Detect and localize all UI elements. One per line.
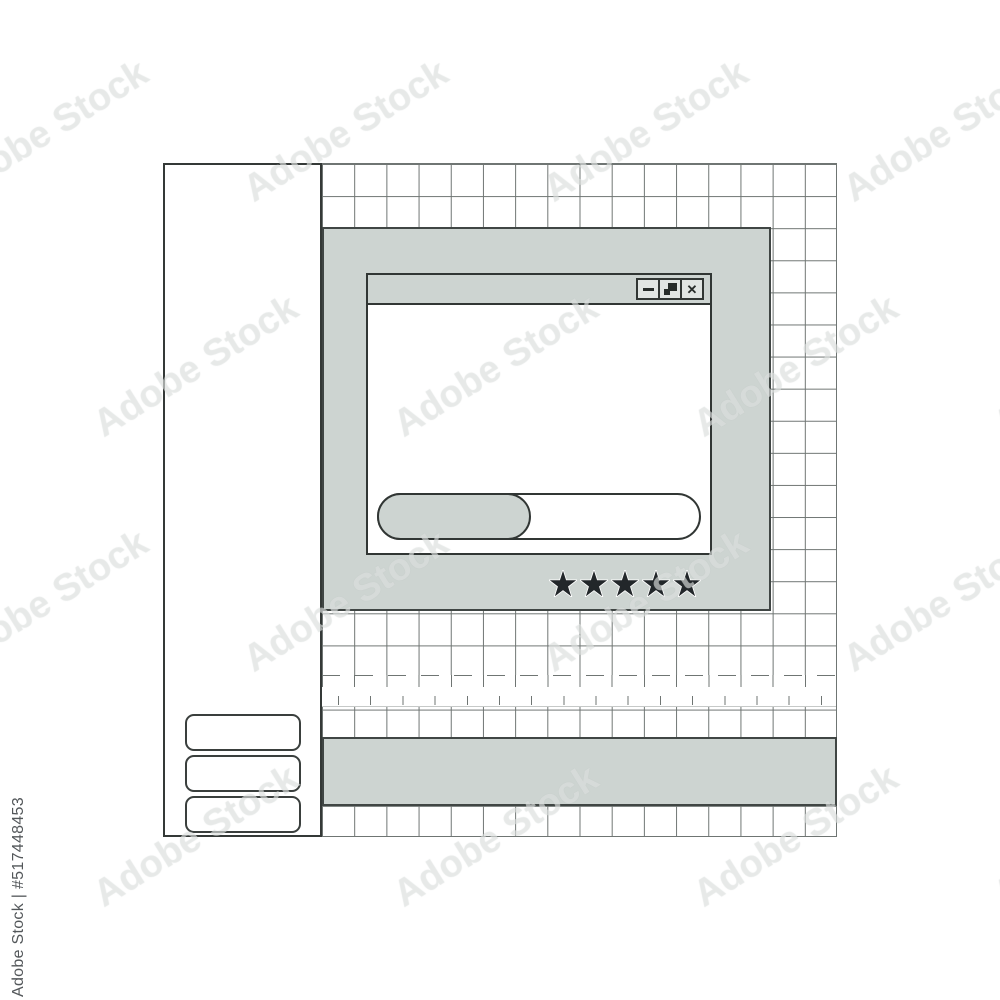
restore-button[interactable] <box>658 278 682 300</box>
star-icon[interactable] <box>549 570 577 597</box>
star-icon[interactable] <box>580 570 608 597</box>
sidebar-slot-button[interactable] <box>185 755 301 792</box>
window-controls: ✕ <box>638 278 704 300</box>
minimize-icon <box>643 288 654 291</box>
illustration-canvas: ✕ Adobe StockAdobe StockAdobe StockAdobe… <box>0 0 1000 1000</box>
star-rating <box>549 570 701 597</box>
watermark-text: Adobe Stock <box>836 52 1000 212</box>
watermark-text: Adobe Stock <box>836 522 1000 682</box>
browser-window: ✕ <box>366 273 712 555</box>
close-icon: ✕ <box>687 283 698 296</box>
star-icon[interactable] <box>673 570 701 597</box>
progress-bar-fill <box>377 493 531 540</box>
star-icon[interactable] <box>611 570 639 597</box>
sidebar-slot-button[interactable] <box>185 796 301 833</box>
watermark-text: Adobe Stock <box>986 757 1000 917</box>
minimize-button[interactable] <box>636 278 660 300</box>
dialog-panel: ✕ <box>322 227 771 611</box>
close-button[interactable]: ✕ <box>680 278 704 300</box>
restore-icon <box>664 283 677 295</box>
window-titlebar[interactable]: ✕ <box>368 275 710 305</box>
watermark-text: Adobe Stock <box>0 52 156 212</box>
watermark-text: Adobe Stock <box>0 522 156 682</box>
bottom-bar <box>322 737 837 806</box>
grid-dash-line <box>322 675 836 676</box>
grid-distressed-band <box>322 675 836 707</box>
sidebar-panel <box>163 163 322 837</box>
star-icon[interactable] <box>642 570 670 597</box>
progress-bar-track <box>377 493 701 540</box>
watermark-credit: Adobe Stock | #517448453 <box>10 797 28 997</box>
watermark-text: Adobe Stock <box>986 287 1000 447</box>
sidebar-slot-button[interactable] <box>185 714 301 751</box>
